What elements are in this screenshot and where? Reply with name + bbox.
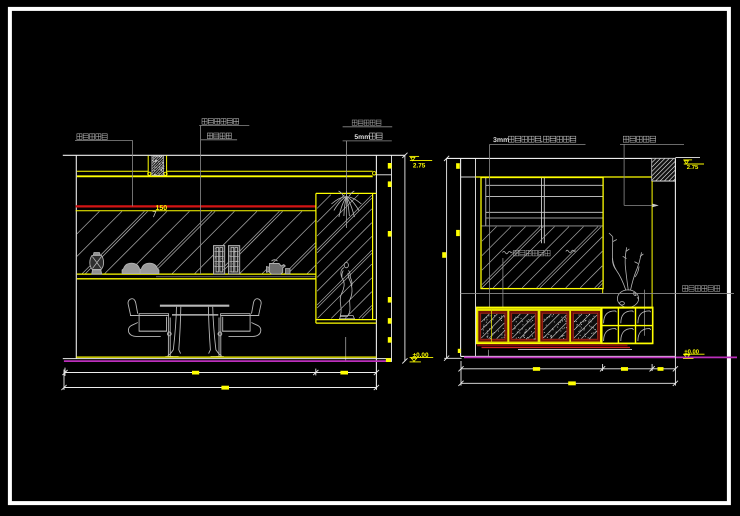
svg-text:3mm: 3mm xyxy=(493,137,509,144)
svg-text:5mm: 5mm xyxy=(354,134,370,141)
svg-text:2.75: 2.75 xyxy=(687,164,699,171)
svg-text:2.75: 2.75 xyxy=(413,162,426,169)
